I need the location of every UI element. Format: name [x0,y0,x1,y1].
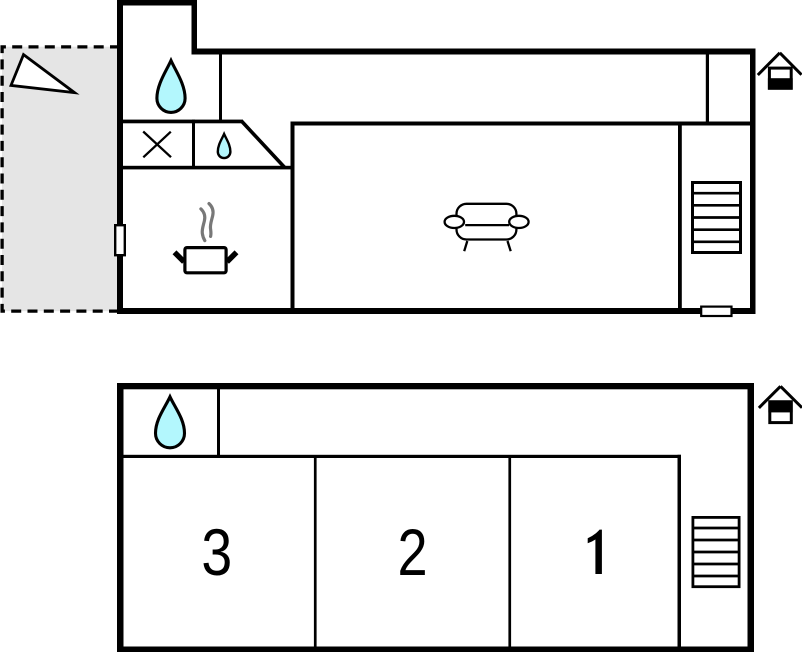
svg-text:2: 2 [398,515,428,589]
svg-text:3: 3 [201,515,232,589]
